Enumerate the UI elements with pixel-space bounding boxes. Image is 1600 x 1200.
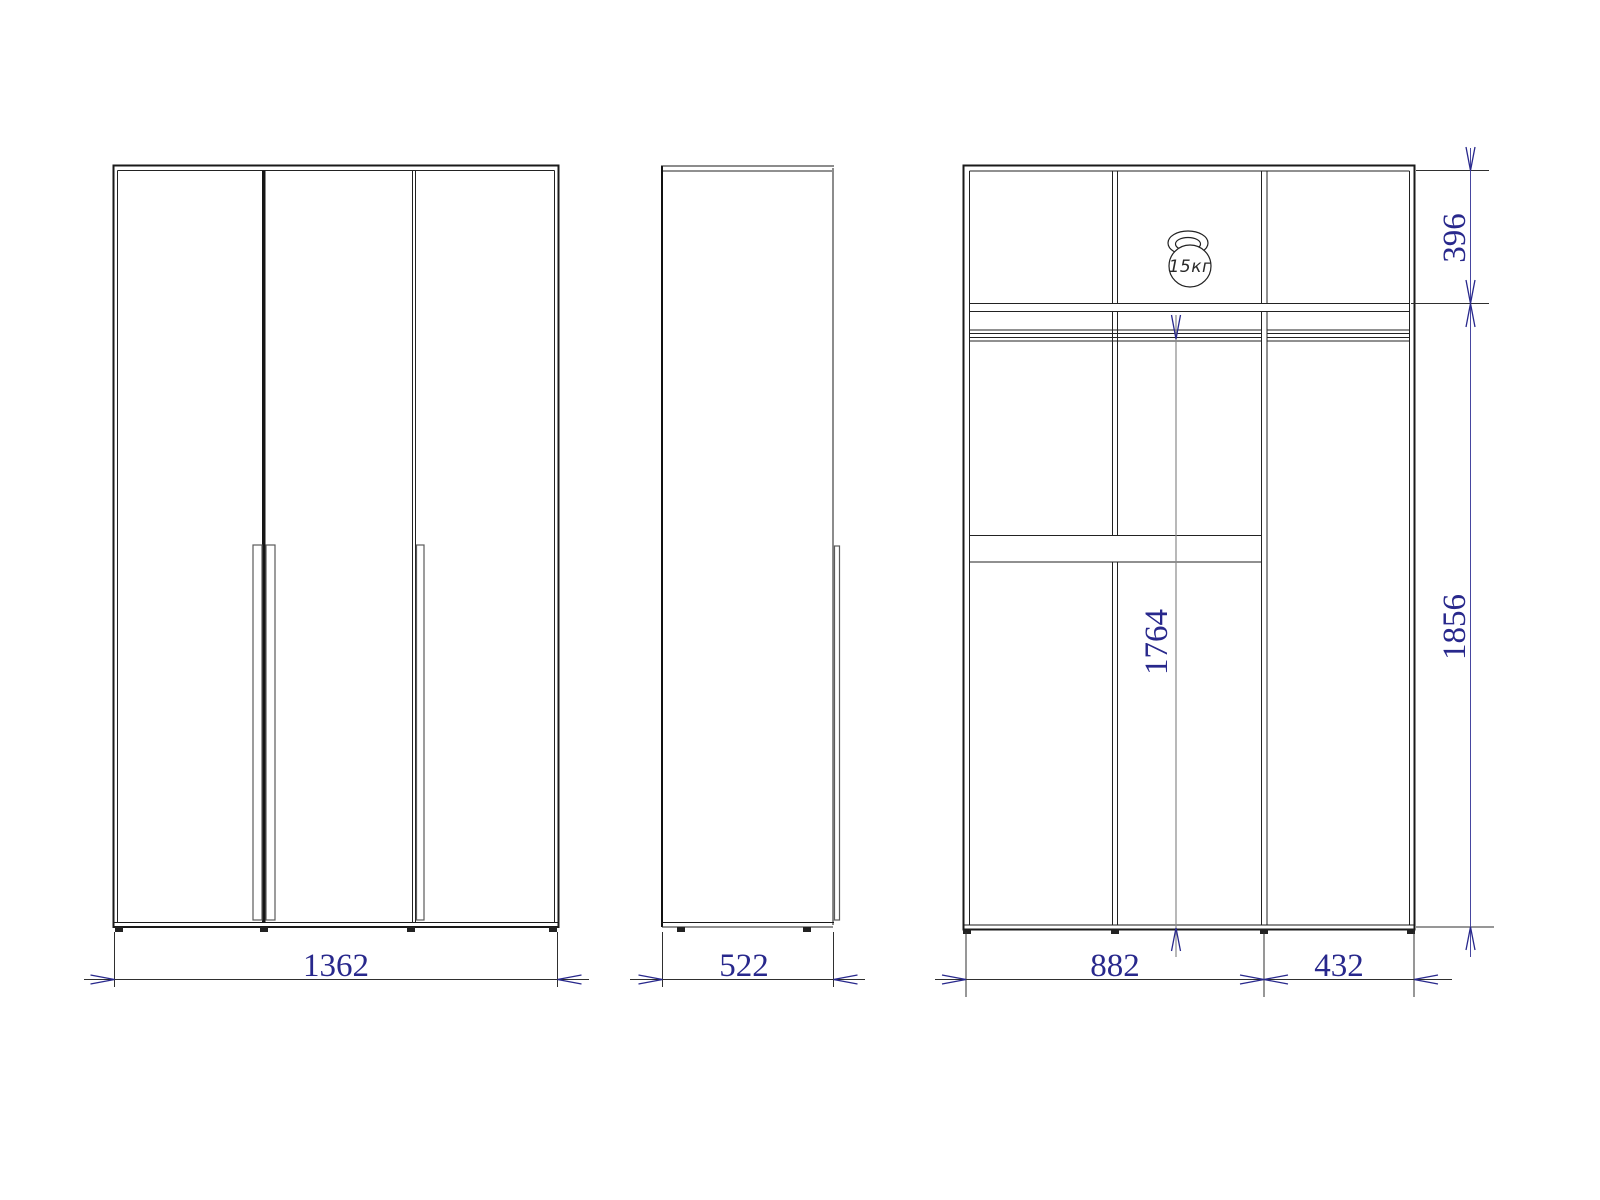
handle-left-door bbox=[253, 545, 262, 920]
interior-height-label: 1856 bbox=[1437, 594, 1473, 660]
side-view-outline bbox=[661, 166, 834, 927]
internal-top-shelf bbox=[970, 304, 1410, 312]
hanging-rod-left bbox=[970, 330, 1262, 341]
handle-middle-door bbox=[266, 545, 275, 920]
handle-right-door bbox=[417, 545, 425, 920]
side-feet bbox=[677, 927, 811, 932]
internal-view: 15кг 1764 396 1856 bbox=[935, 147, 1494, 997]
max-load-label: 15кг bbox=[1169, 257, 1212, 277]
front-width-label: 1362 bbox=[303, 948, 369, 984]
front-view: 1362 bbox=[84, 166, 589, 988]
front-width-dimension: 1362 bbox=[84, 932, 589, 987]
front-door-gaps bbox=[262, 171, 416, 923]
side-depth-dimension: 522 bbox=[630, 932, 865, 987]
hanging-rod-right bbox=[1267, 330, 1410, 341]
right-height-dimensions: 396 1856 bbox=[1411, 147, 1494, 957]
internal-width-dimensions: 882 432 bbox=[935, 932, 1452, 997]
side-depth-label: 522 bbox=[719, 948, 769, 984]
internal-lower-shelf bbox=[970, 536, 1262, 563]
side-view: 522 bbox=[630, 166, 865, 987]
top-section-height-label: 396 bbox=[1437, 213, 1473, 263]
rod-height-label: 1764 bbox=[1139, 609, 1175, 675]
front-door-handles bbox=[253, 545, 424, 920]
left-section-width-label: 882 bbox=[1090, 948, 1140, 984]
drawing-canvas: 1362 522 bbox=[0, 0, 1600, 1200]
kettlebell-weight-icon: 15кг bbox=[1168, 231, 1211, 287]
side-handle-profile bbox=[835, 546, 840, 920]
internal-rod-height-dimension: 1764 bbox=[1139, 315, 1181, 957]
right-section-width-label: 432 bbox=[1314, 948, 1364, 984]
front-view-outline bbox=[114, 166, 559, 928]
